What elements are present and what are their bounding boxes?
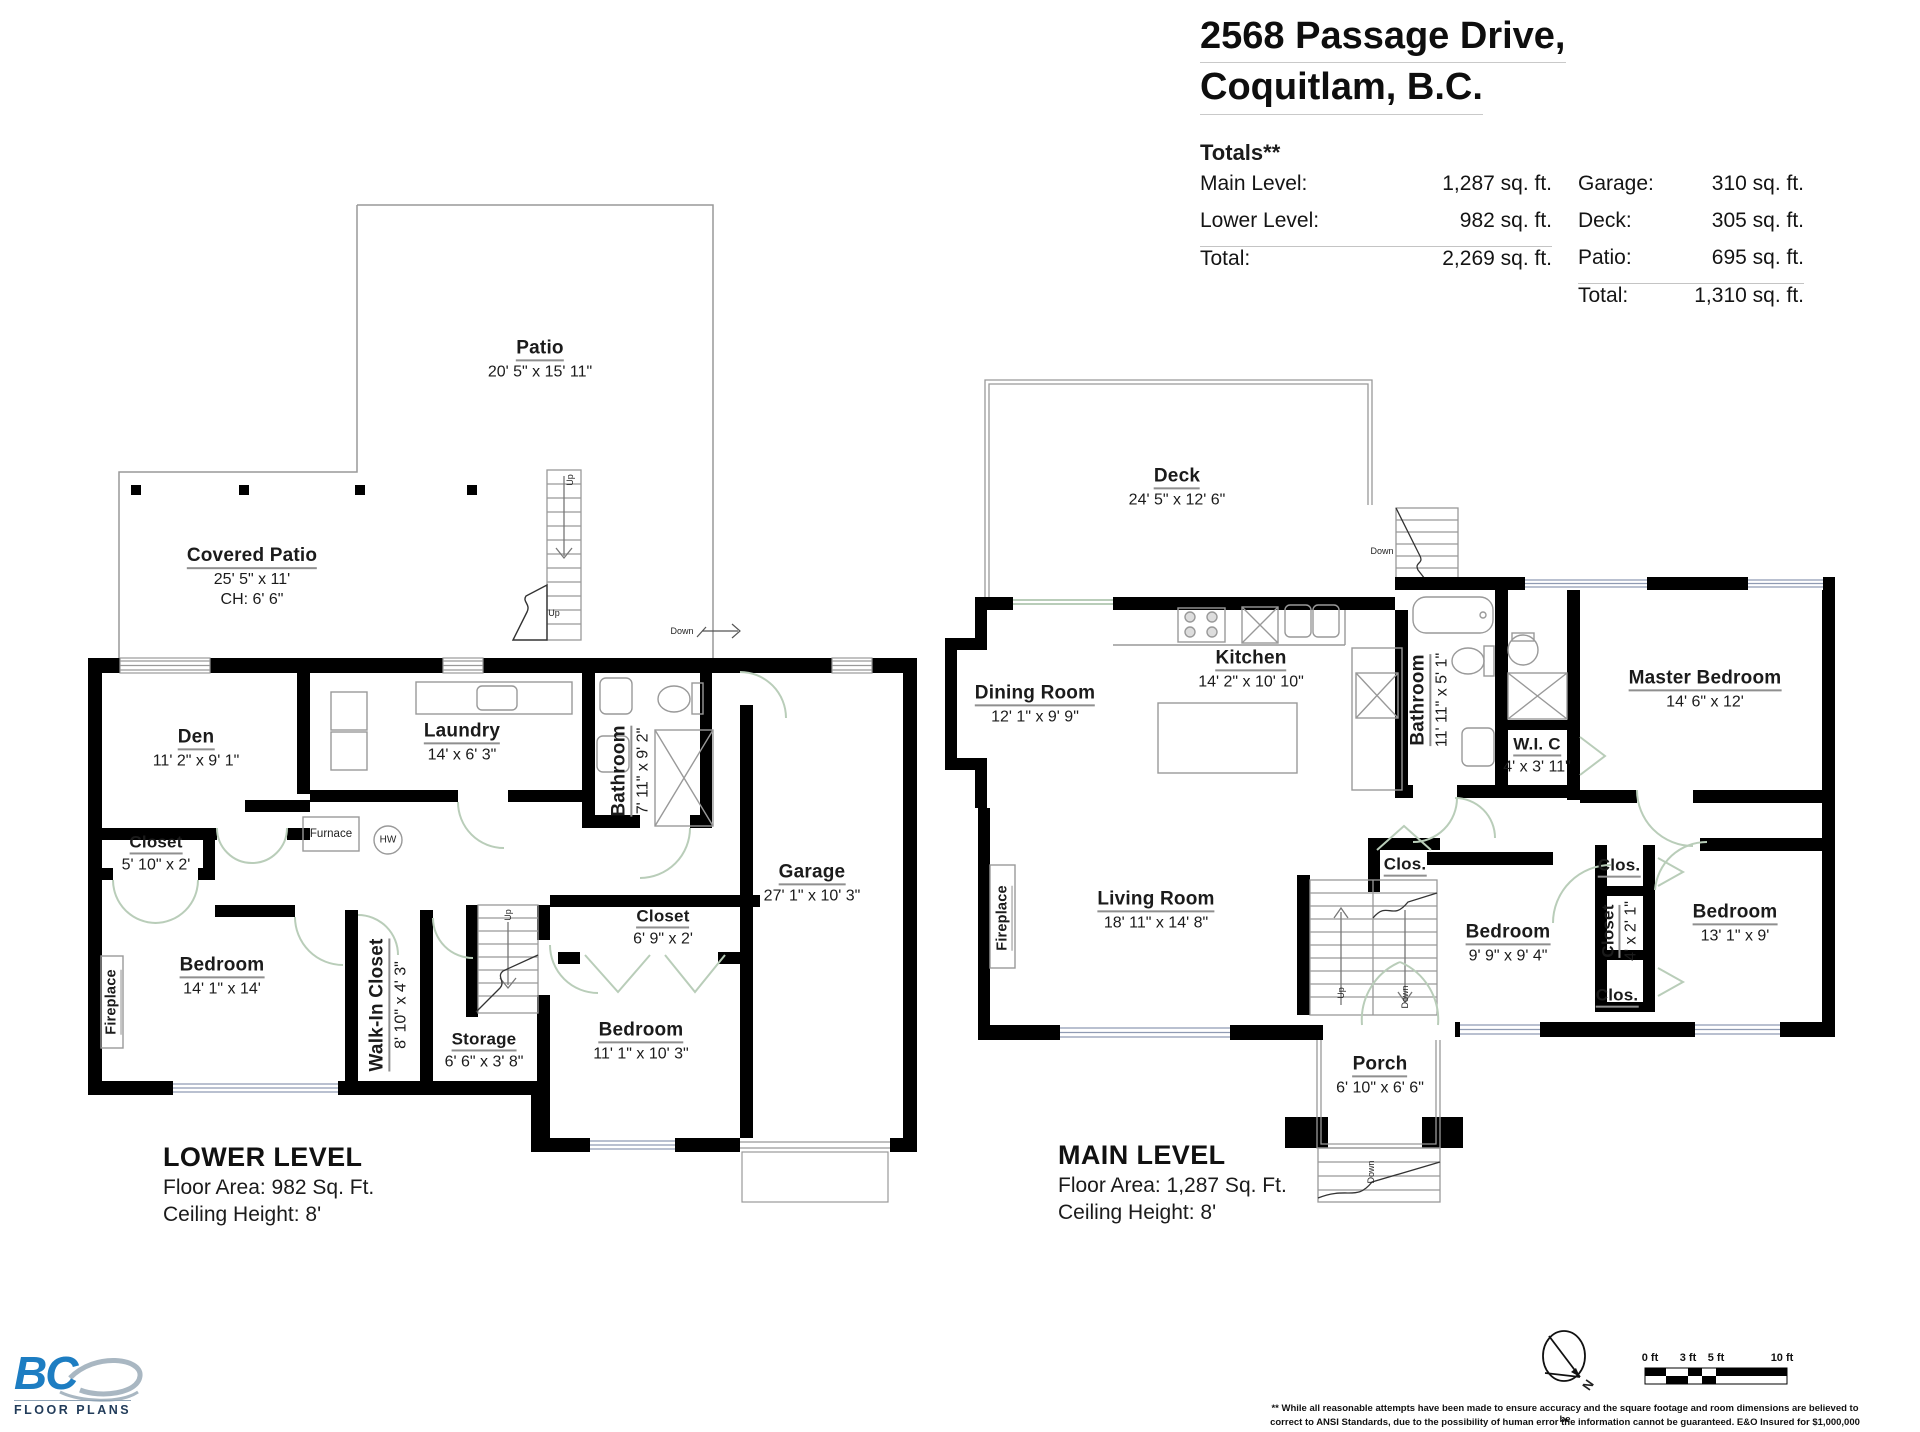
room-label-lower-bedroom-1: Bedroom 14' 1" x 14' (180, 955, 265, 998)
floorplan-page: 2568 Passage Drive, Coquitlam, B.C. Tota… (0, 0, 1920, 1432)
totals-row-garage: Garage: 310 sq. ft. (1578, 172, 1804, 209)
totals-value: 310 sq. ft. (1712, 172, 1804, 196)
totals-row-patio: Patio: 695 sq. ft. (1578, 246, 1804, 284)
totals-value: 695 sq. ft. (1712, 246, 1804, 270)
bc-floor-plans-logo: BC FLOOR PLANS (12, 1352, 172, 1428)
north-arrow (1543, 1331, 1585, 1381)
room-label-patio: Patio 20' 5" x 15' 11" (488, 338, 592, 381)
scale-tick-5ft: 5 ft (1708, 1352, 1725, 1364)
lower-patio-posts (131, 485, 477, 495)
disclaimer-line-2: correct to ANSI Standards, due to the po… (1265, 1417, 1865, 1428)
scale-bar (1645, 1368, 1787, 1384)
room-label-closet-upper: Clos. (1598, 857, 1641, 878)
room-label-covered-patio: Covered Patio 25' 5" x 11' CH: 6' 6" (187, 546, 317, 610)
stairs-down-label: Down (1400, 985, 1410, 1008)
stairs-down-label: Down (1366, 1160, 1376, 1183)
lower-interior-stairs (476, 905, 538, 1013)
scale-tick-3ft: 3 ft (1680, 1352, 1697, 1364)
totals-label: Deck: (1578, 209, 1632, 233)
main-level-title: MAIN LEVEL (1058, 1140, 1287, 1171)
totals-label: Garage: (1578, 172, 1654, 196)
room-label-main-bedroom-1: Bedroom 9' 9" x 9' 4" (1466, 922, 1551, 965)
totals-row-outdoor-total: Total: 1,310 sq. ft. (1578, 284, 1804, 321)
totals-value: 1,310 sq. ft. (1694, 284, 1804, 308)
stairs-up-label: Up (548, 608, 560, 618)
room-label-closet-lower: Clos. (1596, 987, 1639, 1008)
room-label-main-bathroom: Bathroom 11' 11" x 5' 1" (1408, 653, 1451, 747)
room-label-lower-closet-2: Closet 6' 9" x 2' (633, 907, 693, 948)
main-level-area: Floor Area: 1,287 Sq. Ft. (1058, 1174, 1287, 1198)
lower-level-title: LOWER LEVEL (163, 1142, 374, 1173)
lower-down-arrow (697, 624, 740, 638)
room-label-master-bedroom: Master Bedroom 14' 6" x 12' (1629, 668, 1782, 711)
room-label-porch: Porch 6' 10" x 6' 6" (1336, 1054, 1424, 1097)
stairs-down-label: Down (1370, 546, 1393, 556)
room-label-deck: Deck 24' 5" x 12' 6" (1129, 466, 1226, 509)
lower-level-ceiling: Ceiling Height: 8' (163, 1203, 374, 1227)
totals-label: Lower Level: (1200, 209, 1319, 233)
totals-label: Main Level: (1200, 172, 1307, 196)
main-level-ceiling: Ceiling Height: 8' (1058, 1201, 1287, 1225)
lower-level-summary: LOWER LEVEL Floor Area: 982 Sq. Ft. Ceil… (163, 1142, 374, 1227)
scale-tick-0ft: 0 ft (1642, 1352, 1659, 1364)
totals-left-column: Main Level: 1,287 sq. ft. Lower Level: 9… (1200, 172, 1552, 284)
title-line-2: Coquitlam, B.C. (1200, 63, 1483, 114)
room-label-kitchen: Kitchen 14' 2" x 10' 10" (1198, 648, 1304, 691)
stairs-up-label: Up (503, 909, 513, 921)
room-label-closet: Closet 5' 10" x 2' (122, 833, 191, 874)
scale-tick-10ft: 10 ft (1771, 1352, 1794, 1364)
stairs-up-label: Up (565, 474, 575, 486)
room-label-wic: W.I. C 4' x 3' 11" (1503, 735, 1571, 776)
room-label-closet-stairs: Clos. (1384, 856, 1427, 877)
totals-row-deck: Deck: 305 sq. ft. (1578, 209, 1804, 246)
room-label-closet-middle: Closet 4' x 2' 1" (1599, 901, 1640, 961)
logo-floor-plans-text: FLOOR PLANS (14, 1400, 131, 1417)
room-label-lower-bedroom-2: Bedroom 11' 1" x 10' 3" (593, 1020, 688, 1063)
totals-row-total: Total: 2,269 sq. ft. (1200, 247, 1552, 284)
room-label-garage: Garage 27' 1" x 10' 3" (764, 862, 861, 905)
main-fireplace-label: Fireplace (994, 885, 1013, 950)
room-label-walk-in-closet: Walk-In Closet 8' 10" x 4' 3" (367, 939, 410, 1072)
room-label-storage: Storage 6' 6" x 3' 8" (445, 1030, 524, 1071)
furnace-label: Furnace (310, 828, 352, 840)
stairs-down-label: Down (670, 626, 693, 636)
title-line-1: 2568 Passage Drive, (1200, 12, 1566, 63)
lower-exterior-stairs (513, 470, 581, 640)
page-title: 2568 Passage Drive, Coquitlam, B.C. (1200, 12, 1566, 115)
main-stairs (1310, 880, 1437, 1015)
totals-value: 2,269 sq. ft. (1442, 247, 1552, 271)
totals-label: Patio: (1578, 246, 1632, 270)
room-label-living-room: Living Room 18' 11" x 14' 8" (1097, 889, 1214, 932)
main-door-arcs (1362, 737, 1707, 1025)
totals-row-lower-level: Lower Level: 982 sq. ft. (1200, 209, 1552, 247)
main-level-summary: MAIN LEVEL Floor Area: 1,287 Sq. Ft. Cei… (1058, 1140, 1287, 1225)
room-label-lower-bathroom: Bathroom 7' 11" x 9' 2" (609, 725, 652, 816)
totals-label: Total: (1578, 284, 1628, 308)
room-label-laundry: Laundry 14' x 6' 3" (424, 721, 500, 764)
hot-water-tank-label: HW (380, 835, 397, 846)
room-label-main-bedroom-2: Bedroom 13' 1" x 9' (1693, 902, 1778, 945)
totals-value: 982 sq. ft. (1460, 209, 1552, 233)
totals-value: 305 sq. ft. (1712, 209, 1804, 233)
lower-level-area: Floor Area: 982 Sq. Ft. (163, 1176, 374, 1200)
totals-value: 1,287 sq. ft. (1442, 172, 1552, 196)
totals-right-column: Garage: 310 sq. ft. Deck: 305 sq. ft. Pa… (1578, 172, 1804, 321)
logo-bc-text: BC (14, 1346, 76, 1400)
room-label-dining-room: Dining Room 12' 1" x 9' 9" (975, 683, 1095, 726)
totals-row-main-level: Main Level: 1,287 sq. ft. (1200, 172, 1552, 209)
main-deck-stairs (1396, 508, 1458, 588)
totals-heading: Totals** (1200, 140, 1280, 166)
stairs-up-label: Up (1336, 987, 1346, 999)
lower-fireplace-label: Fireplace (103, 969, 122, 1034)
room-label-den: Den 11' 2" x 9' 1" (153, 727, 240, 770)
totals-label: Total: (1200, 247, 1250, 271)
